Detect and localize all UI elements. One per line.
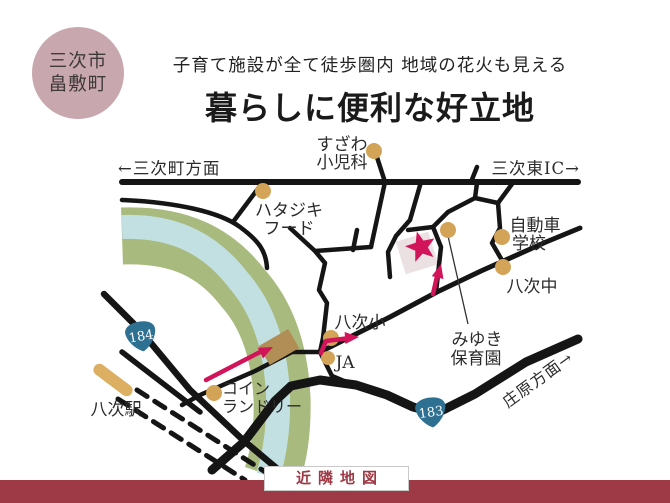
label-miyuki-line1: みゆき (452, 330, 503, 350)
header: 子育て施設が全て徒歩圏内 地域の花火も見える 暮らしに便利な好立地 (100, 52, 640, 129)
label-suzawa-line1: すざわ (317, 134, 368, 155)
label-yatsugi-chu: 八次中 (507, 277, 558, 297)
poi-dot-suzawa (366, 143, 382, 159)
label-hatajiki-line2: フード (264, 219, 315, 239)
footer-label: 近隣地図 (296, 469, 384, 487)
direction-east-label: 三次東IC→ (492, 159, 580, 178)
label-coin-laundry-line1: コイン (222, 379, 270, 398)
poi-dot-coin-laundry (206, 385, 222, 401)
flyer-page: 184 183 ←三次町方面 三次東IC→ 庄原方面→ すざわ 小児科 ハタジキ… (0, 0, 670, 503)
road-suzawa-stem (371, 151, 385, 247)
river-bank (122, 236, 282, 476)
label-yatsugi-sho: 八次小 (335, 313, 386, 333)
label-hatajiki-line1: ハタジキ (255, 201, 323, 221)
station-platform (91, 361, 135, 398)
road-ladder-top (475, 183, 512, 203)
label-station: 八次駅 (91, 400, 142, 420)
poi-dot-miyuki (440, 222, 456, 238)
page-title: 暮らしに便利な好立地 (100, 83, 640, 129)
label-coin-laundry-line2: ランドリー (222, 397, 302, 416)
poi-dot-jidosha (494, 229, 510, 245)
label-jidosha-line1: 自動車 (510, 216, 561, 236)
subtitle: 子育て施設が全て徒歩圏内 地域の花火も見える (100, 52, 640, 77)
direction-west-label: ←三次町方面 (118, 159, 220, 178)
route-shield-183: 183 (414, 396, 448, 430)
poi-dot-yatsugi-chu (495, 259, 511, 275)
area-badge-line2: 畠敷町 (49, 73, 108, 96)
footer-label-box: 近隣地図 (264, 466, 409, 491)
poi-dot-hatajiki (255, 183, 271, 199)
area-badge-line1: 三次市 (49, 50, 108, 73)
label-ja: JA (333, 353, 355, 373)
road-star-connector (408, 198, 475, 230)
label-jidosha-line2: 学校 (512, 234, 546, 254)
label-suzawa-line2: 小児科 (317, 153, 368, 173)
label-miyuki-line2: 保育園 (451, 349, 502, 369)
